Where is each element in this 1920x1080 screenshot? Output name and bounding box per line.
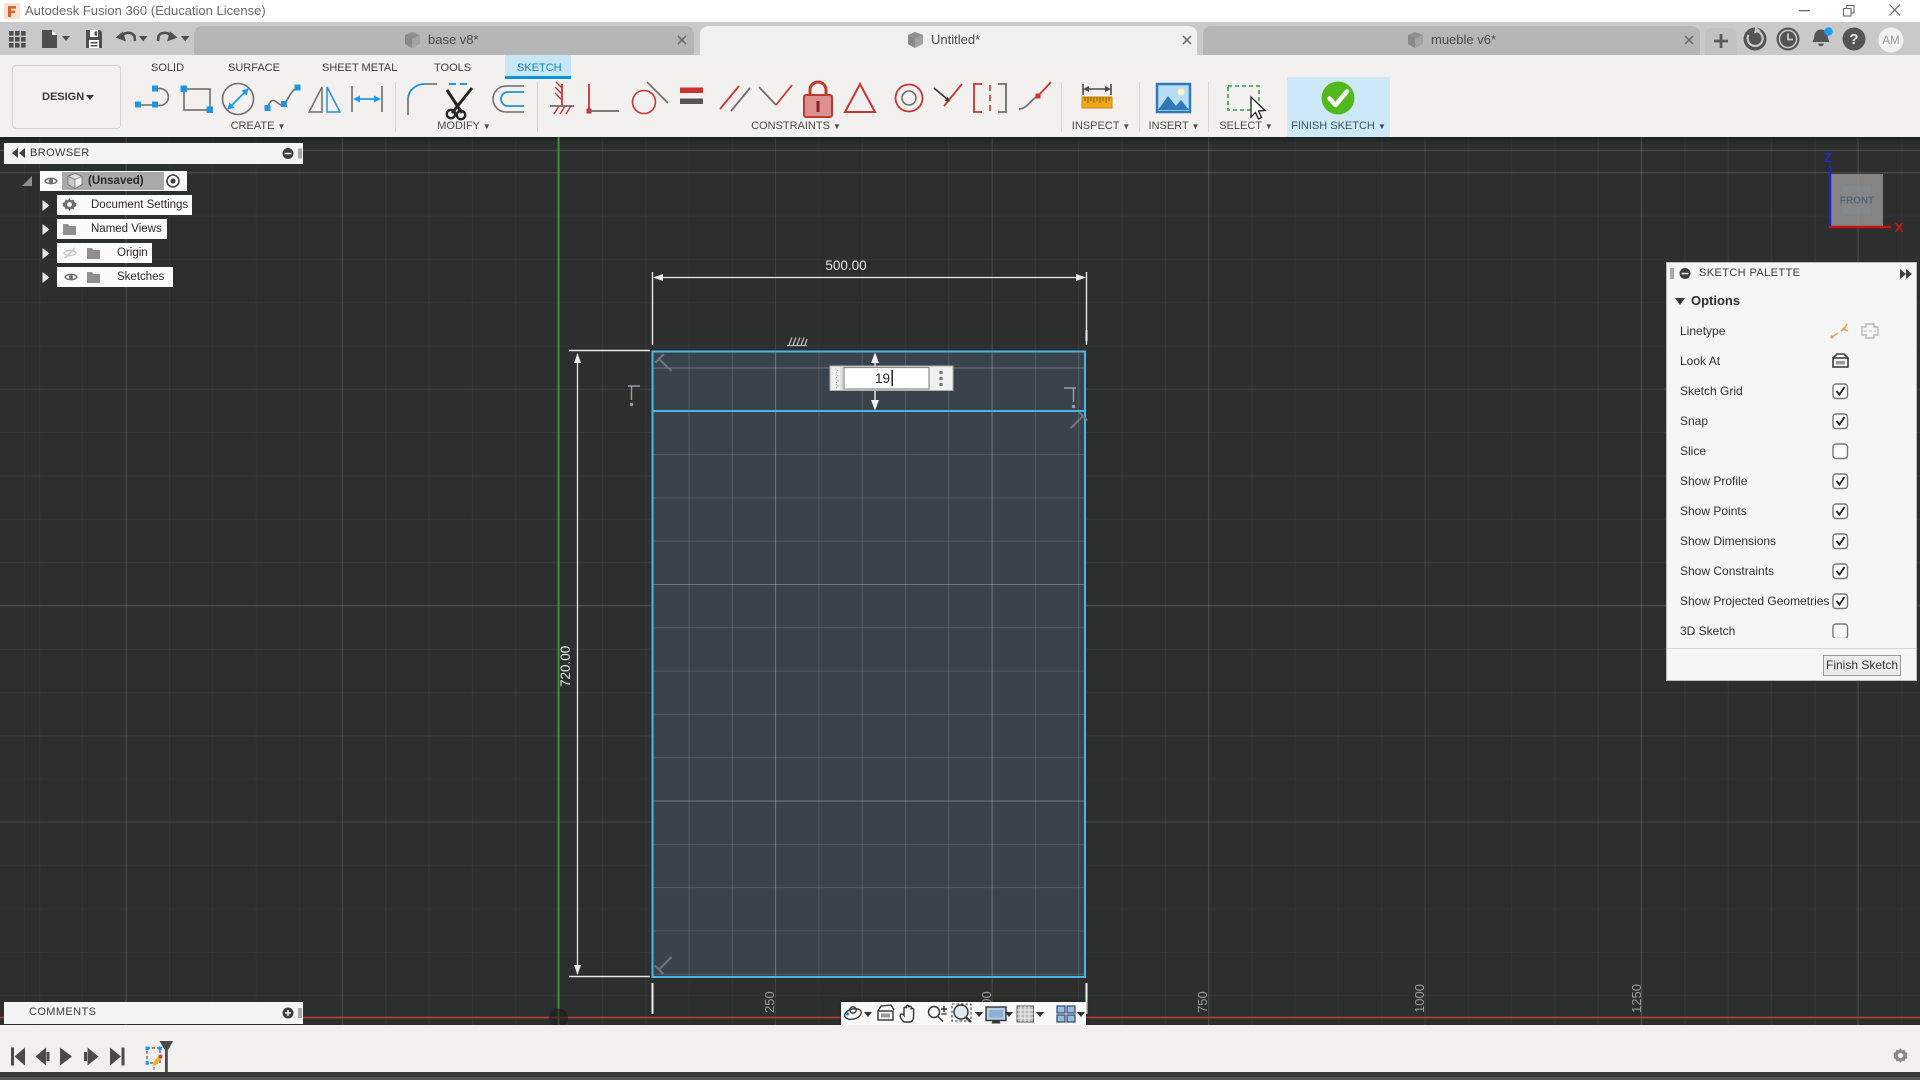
svg-text:1250: 1250 (1629, 984, 1644, 1013)
svg-text:?: ? (1849, 31, 1858, 48)
svg-text:Z: Z (1824, 150, 1832, 165)
svg-text:250: 250 (762, 991, 777, 1013)
svg-text:750: 750 (1195, 991, 1210, 1013)
svg-text:500.00: 500.00 (825, 258, 866, 273)
svg-text:1000: 1000 (1412, 984, 1427, 1013)
svg-text:19: 19 (875, 371, 890, 386)
svg-text:X: X (1895, 220, 1904, 235)
svg-text:FRONT: FRONT (1840, 196, 1874, 207)
svg-text:720.00: 720.00 (558, 646, 573, 687)
svg-text:AM: AM (1882, 35, 1899, 47)
